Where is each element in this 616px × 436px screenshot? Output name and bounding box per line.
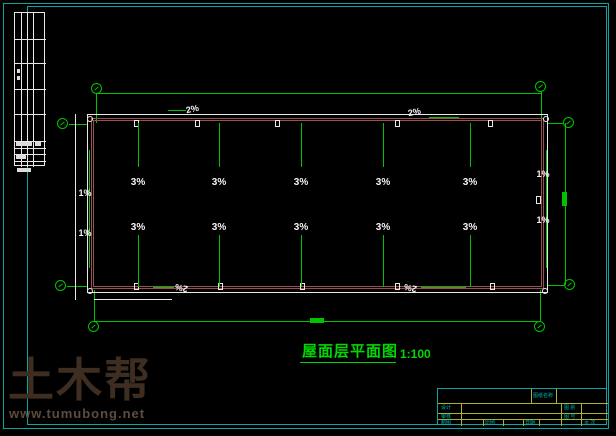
signature-table-line	[15, 63, 46, 64]
slope-label: 3%	[209, 177, 229, 188]
signature-table-line	[15, 114, 46, 115]
gutter-slope-line	[546, 150, 547, 268]
left-dimension-line	[75, 114, 76, 300]
corner-drain	[543, 116, 549, 122]
axis-line	[548, 123, 563, 124]
side-slope-label: 1%	[534, 169, 552, 179]
slope-label: 3%	[373, 222, 393, 233]
dimension-tick	[310, 318, 324, 323]
drain-square	[395, 120, 400, 127]
axis-line	[94, 290, 95, 321]
drain-square	[490, 283, 495, 290]
signature-table-line	[15, 161, 46, 162]
slope-label: 3%	[373, 177, 393, 188]
table-text-mark	[17, 69, 20, 73]
drain-square	[195, 120, 200, 127]
title-block-line	[503, 419, 504, 426]
slope-label: 3%	[128, 177, 148, 188]
axis-line	[548, 285, 564, 286]
side-slope-label: 1%	[534, 215, 552, 225]
slope-label: 3%	[128, 222, 148, 233]
cad-sheet: 3% 3% 3% 3% 3% 3% 3% 3% 3% 3% 1% 1% 1% 1…	[0, 0, 616, 436]
title-block-line	[531, 389, 532, 403]
slope-arrow	[301, 123, 302, 167]
axis-line	[69, 124, 87, 125]
slope-arrow	[383, 123, 384, 167]
watermark-url: www.tumubong.net	[9, 406, 145, 421]
table-text-mark	[35, 142, 41, 146]
axis-line	[67, 286, 87, 287]
drain-square	[275, 120, 280, 127]
title-block-line	[438, 413, 608, 414]
axis-bubble	[88, 321, 99, 332]
gutter-arrow	[153, 287, 174, 288]
gutter-slope-label: 2%	[403, 282, 418, 294]
side-slope-label: 1%	[76, 188, 94, 198]
gutter-arrow	[429, 117, 459, 118]
slope-label: 3%	[460, 222, 480, 233]
gutter-slope-line	[89, 150, 90, 268]
side-slope-label: 1%	[76, 228, 94, 238]
table-text-mark	[16, 155, 26, 159]
dimension-tick	[562, 192, 567, 206]
title-block-line	[523, 419, 524, 426]
slope-arrow	[383, 235, 384, 287]
drawing-scale: 1:100	[400, 347, 431, 361]
slope-arrow	[219, 235, 220, 287]
signature-table-line	[15, 89, 46, 90]
signature-table-line	[33, 13, 34, 167]
title-block-line	[483, 419, 484, 426]
title-block-line	[556, 389, 557, 403]
axis-line	[540, 290, 541, 321]
slope-arrow	[138, 123, 139, 167]
slope-label: 3%	[460, 177, 480, 188]
corner-drain	[87, 288, 93, 294]
gutter-slope-label: 2%	[174, 282, 189, 294]
signature-table	[14, 12, 45, 166]
slope-label: 3%	[209, 222, 229, 233]
title-block-label: 页 次	[584, 420, 595, 426]
axis-bubble	[534, 321, 545, 332]
title-block-label: 图 号	[564, 414, 575, 420]
gutter-arrow	[168, 110, 186, 111]
drawing-title: 屋面层平面图	[302, 343, 398, 360]
slope-arrow	[219, 123, 220, 167]
title-block-line	[539, 419, 540, 426]
gutter-arrow	[421, 287, 466, 288]
watermark-logo: 土木帮	[8, 355, 152, 405]
top-dimension-line	[96, 93, 541, 94]
corner-drain	[87, 116, 93, 122]
signature-table-line	[15, 148, 46, 149]
signature-table-line	[15, 39, 46, 40]
slope-arrow	[470, 123, 471, 167]
title-block-line	[461, 403, 462, 426]
drain-square	[488, 120, 493, 127]
axis-bubble	[55, 280, 66, 291]
title-block-label: 图纸名称	[533, 393, 553, 399]
title-block-label: 日期	[525, 420, 535, 426]
slope-arrow	[301, 235, 302, 287]
axis-bubble	[535, 81, 546, 92]
slope-label: 3%	[291, 222, 311, 233]
table-text-mark	[17, 76, 20, 80]
parapet-inner	[93, 120, 542, 287]
axis-bubble	[57, 118, 68, 129]
title-block-label: 比例	[485, 420, 495, 426]
title-underline	[300, 362, 396, 363]
title-block-label: 设计	[441, 405, 451, 411]
corner-drain	[542, 288, 548, 294]
slope-arrow	[138, 235, 139, 287]
title-block-line	[581, 403, 582, 426]
title-block-line	[438, 403, 608, 404]
dimension-line	[94, 299, 172, 300]
title-block-label: 图 别	[564, 405, 575, 411]
slope-label: 3%	[291, 177, 311, 188]
title-block: 图纸名称 设计 图 别 审核 图 号 制图 比例 日期 页 次	[437, 388, 607, 425]
title-block-line	[561, 403, 562, 426]
title-block-label: 制图	[441, 420, 451, 426]
drain-square	[536, 196, 541, 204]
slope-arrow	[470, 235, 471, 287]
drain-square	[395, 283, 400, 290]
table-text-mark	[16, 142, 32, 146]
table-text-mark	[17, 168, 31, 172]
